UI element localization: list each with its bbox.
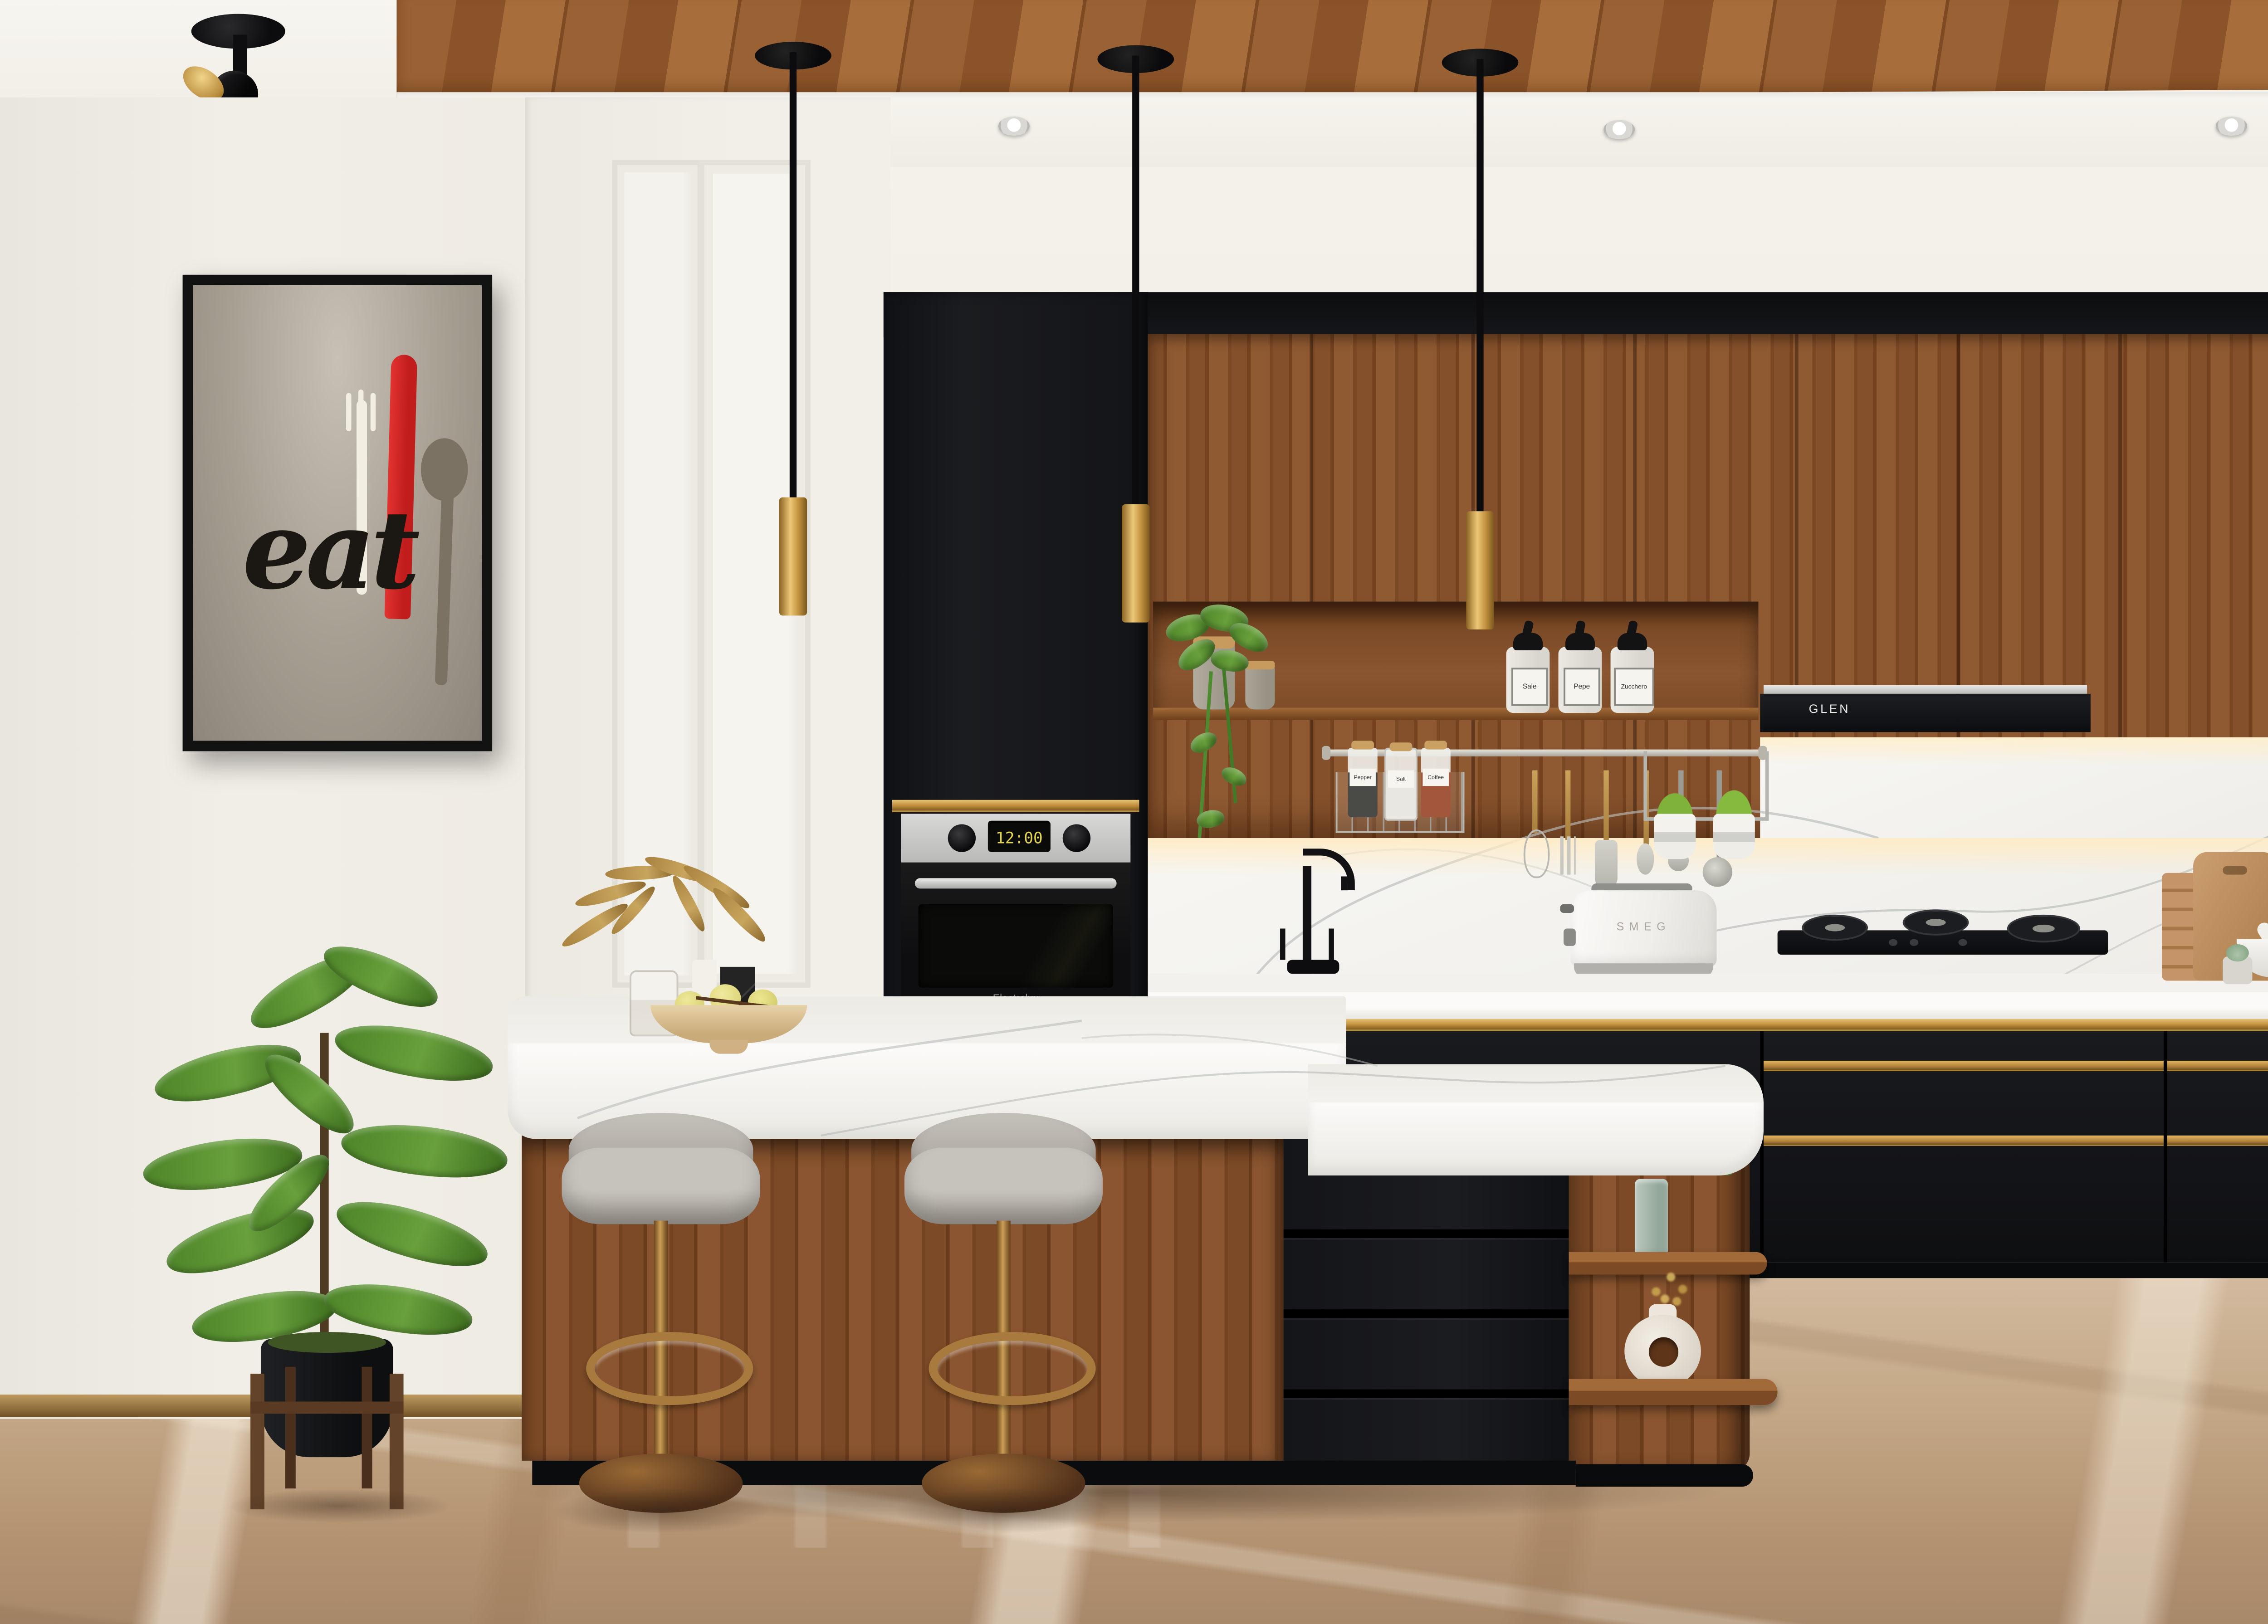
rack-jar-coffee: Coffee — [1421, 748, 1451, 817]
toaster-brand: SMEG — [1570, 922, 1716, 934]
donut-vase-icon — [1624, 1304, 1704, 1388]
bottle-sale: Sale — [1506, 633, 1550, 713]
pendant-brass-shade-icon — [1122, 504, 1149, 623]
faucet-handle-icon — [1280, 929, 1286, 960]
kitchen-faucet — [1270, 849, 1357, 988]
drawer-gap — [1284, 1390, 1569, 1398]
gas-hob — [1778, 904, 2108, 956]
hob-knob-icon — [1910, 939, 1918, 946]
stool-footrest-ring — [929, 1332, 1096, 1405]
oven-display: 12:00 — [988, 821, 1051, 852]
poster-text: eat — [196, 487, 461, 614]
island-plinth — [1576, 1464, 1753, 1487]
oven-knob-icon — [1063, 824, 1090, 852]
floor-plant — [139, 953, 522, 1526]
hob-knob-icon — [1889, 939, 1897, 946]
pot-stand-leg — [285, 1367, 296, 1488]
hood-top-strip — [1764, 685, 2087, 694]
pendant-light — [1096, 45, 1176, 623]
oven-brass-trim — [892, 800, 1139, 812]
kitchen-fork-icon — [1557, 756, 1578, 888]
whisk-icon — [1522, 756, 1549, 882]
herb-tuft-icon — [1654, 790, 1696, 817]
fruit-bowl — [650, 984, 807, 1057]
pendant-light — [753, 42, 833, 615]
bottle-label: Pepe — [1564, 668, 1600, 706]
recessed-downlight-icon — [1603, 120, 1635, 139]
rack-jar-label: Pepper — [1349, 769, 1376, 786]
hood-brand: GLEN — [1809, 704, 1851, 717]
under-hood-glow — [1760, 737, 2268, 765]
burner-icon — [1802, 915, 1868, 941]
recessed-downlight-icon — [998, 117, 1030, 136]
utensil-rail: Pepper Salt Coffee — [1327, 744, 1762, 883]
drawer-gap — [1284, 1229, 1569, 1238]
plant-soil-moss — [268, 1332, 386, 1353]
cabinet-door-seam — [1310, 334, 1313, 838]
shelf-bottom — [1569, 1379, 1778, 1405]
pot-stand-leg — [390, 1374, 404, 1509]
herb-tuft-icon — [1713, 786, 1755, 817]
oven-control-panel: 12:00 — [901, 814, 1130, 862]
bowl-icon — [650, 1005, 807, 1043]
rack-jar-label: Coffee — [1422, 769, 1449, 786]
bar-stool — [890, 1113, 1116, 1551]
oven-knob-icon — [948, 824, 976, 852]
herb-pot-icon — [1713, 814, 1755, 859]
drawer-gap — [1284, 1309, 1569, 1318]
pot-stand-bar — [250, 1401, 403, 1414]
succulent-pot-icon — [2223, 956, 2252, 984]
rack-jar-salt: Salt — [1384, 748, 1417, 821]
eat-poster: eat — [183, 275, 493, 751]
poster-fork-tines-icon — [371, 393, 376, 431]
pendant-rod — [1132, 56, 1139, 508]
pendant-rod — [790, 52, 797, 501]
island-drawer-stack — [1284, 1136, 1569, 1469]
poster-fork-tines-icon — [346, 393, 352, 431]
spatula-icon — [1593, 756, 1618, 896]
hanging-herb-pots — [1643, 751, 1769, 859]
stool-shadow — [894, 1488, 1113, 1534]
plant-pot — [261, 1339, 393, 1457]
base-cabinet-seam — [2164, 1031, 2167, 1263]
pot-stand-leg — [362, 1367, 372, 1488]
poster-canvas: eat — [193, 285, 482, 741]
bottle-zucchero: Zucchero — [1611, 633, 1654, 713]
faucet-handle-icon — [1329, 929, 1334, 960]
bottle-pepe: Pepe — [1559, 633, 1602, 713]
green-glass-vase-icon — [1635, 1179, 1668, 1256]
oven-window — [919, 904, 1113, 988]
rack-jar-pepper: Pepper — [1348, 748, 1378, 817]
rack-jar-cap — [1390, 742, 1413, 751]
drawer-brass-handle — [1760, 1136, 2268, 1146]
pendant-light — [1440, 49, 1520, 629]
plant-shadow — [226, 1488, 452, 1523]
wood-slat-ceiling — [396, 0, 2268, 99]
oven-handle — [915, 878, 1117, 888]
herb-pot-icon — [1654, 814, 1696, 859]
rail-wire-basket: Pepper Salt Coffee — [1336, 772, 1465, 833]
oven: 12:00 Electrolux — [901, 814, 1130, 1022]
pendant-brass-shade-icon — [779, 497, 807, 616]
rack-jar-cap — [1351, 741, 1374, 749]
toaster: SMEG — [1570, 883, 1716, 981]
island-countertop-ext — [1308, 1064, 1764, 1175]
stool-cushion — [562, 1148, 760, 1224]
bar-stool — [548, 1113, 774, 1551]
oven-display-time: 12:00 — [996, 831, 1043, 849]
recessed-downlight-icon — [2216, 117, 2247, 136]
burner-icon — [2007, 915, 2080, 942]
rack-jar-label: Salt — [1388, 771, 1414, 788]
bottle-label: Zucchero — [1614, 668, 1654, 706]
rail-end — [1322, 746, 1330, 760]
drawer-brass-handle — [1760, 1061, 2268, 1071]
stool-footrest-ring — [586, 1332, 753, 1405]
rack-jar-cap — [1424, 741, 1447, 749]
hob-knob-icon — [1958, 939, 1967, 946]
poster-fork-tines-icon — [358, 390, 364, 431]
stool-shadow — [551, 1488, 770, 1534]
stool-cushion — [904, 1148, 1103, 1224]
range-hood: GLEN — [1760, 685, 2091, 737]
toaster-lever-icon — [1560, 904, 1574, 913]
pot-stand-leg — [250, 1374, 264, 1509]
burner-icon — [1903, 909, 1969, 936]
pendant-rod — [1476, 59, 1483, 515]
bottle-label: Sale — [1511, 668, 1548, 706]
pendant-brass-shade-icon — [1466, 511, 1494, 629]
counter-decor-group — [2157, 849, 2268, 998]
kitchen-scene: eat 12:00 Electrolux — [0, 0, 2268, 1624]
